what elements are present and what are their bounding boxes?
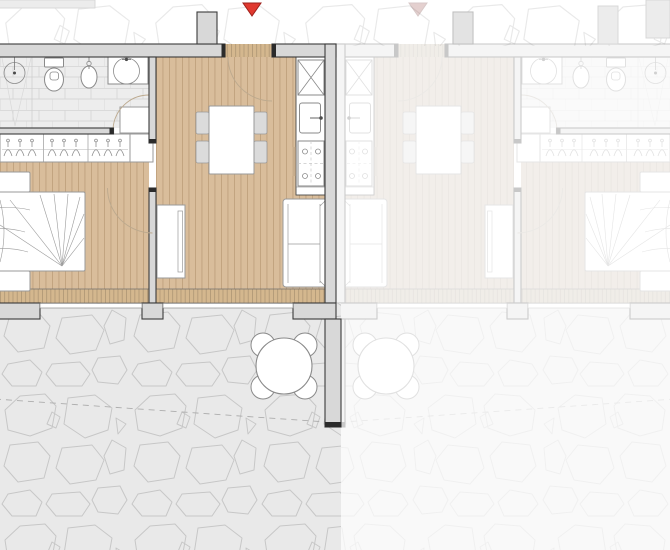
neighbour-pillar (646, 0, 670, 38)
neighbour-structure (0, 0, 95, 8)
unit-b-plan-faded (329, 3, 670, 550)
floor-plan-canvas (0, 0, 670, 550)
outside-stone-paving (0, 0, 670, 46)
outside-paving (0, 0, 670, 46)
neighbour-pillar (598, 6, 618, 44)
floor-plan-svg (0, 0, 670, 550)
unit-a-plan (0, 3, 341, 550)
chimney-pillar-right (453, 12, 473, 44)
